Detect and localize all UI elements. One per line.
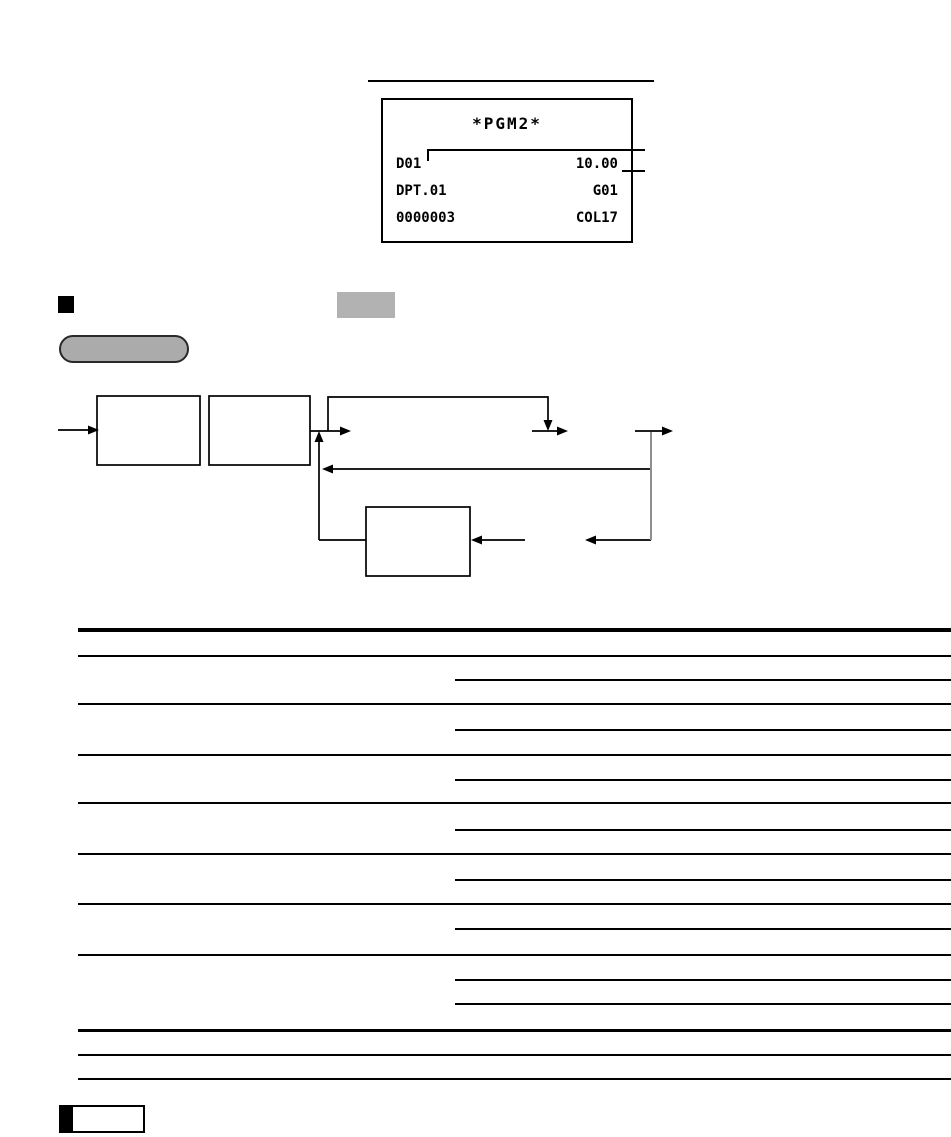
procedure-pill xyxy=(59,335,189,363)
arrowhead-bottom-2 xyxy=(471,536,482,545)
table-top-rule xyxy=(78,628,951,632)
table-sub-rule xyxy=(455,879,951,881)
receipt-row-1-left: D01 xyxy=(396,156,421,172)
flow-box-3 xyxy=(366,507,470,576)
table-sub-rule xyxy=(455,979,951,981)
note-box xyxy=(59,1105,145,1133)
table-rule xyxy=(78,903,951,905)
receipt-row-1: D01 10.00 xyxy=(383,156,631,172)
table-sub-rule xyxy=(455,928,951,930)
table-rule xyxy=(78,1054,951,1056)
arrowhead-entry xyxy=(88,426,99,435)
receipt-row-1-right: 10.00 xyxy=(576,156,618,172)
table-sub-rule xyxy=(455,1003,951,1005)
section-marker-icon xyxy=(58,296,74,313)
receipt-row-2: DPT.01 G01 xyxy=(383,183,631,199)
arrowhead-loop-up xyxy=(315,431,324,442)
table-sub-rule xyxy=(455,679,951,681)
receipt-row-2-left: DPT.01 xyxy=(396,183,447,199)
receipt-row-3-left: 0000003 xyxy=(396,210,455,226)
receipt-print-sample: *PGM2* D01 10.00 DPT.01 G01 0000003 COL1… xyxy=(381,98,633,243)
top-divider-rule xyxy=(368,80,654,82)
flow-box-1 xyxy=(97,396,200,465)
callout-line-price xyxy=(622,170,645,172)
arrowhead-seg-2 xyxy=(557,427,568,436)
flow-box-2 xyxy=(209,396,310,465)
note-tab-bar-icon xyxy=(61,1107,73,1131)
table-rule xyxy=(78,853,951,855)
arrowhead-seg-3 xyxy=(662,427,673,436)
table-rule xyxy=(78,954,951,956)
table-rule xyxy=(78,703,951,705)
table-sub-rule xyxy=(455,779,951,781)
flow-bypass-path xyxy=(328,397,548,431)
receipt-row-2-right: G01 xyxy=(593,183,618,199)
table-rule xyxy=(78,754,951,756)
manual-page: *PGM2* D01 10.00 DPT.01 G01 0000003 COL1… xyxy=(0,0,951,1137)
arrowhead-bypass-down xyxy=(544,420,553,431)
receipt-row-3-right: COL17 xyxy=(576,210,618,226)
table-sub-rule xyxy=(455,829,951,831)
table-rule xyxy=(78,655,951,657)
table-rule xyxy=(78,802,951,804)
arrowhead-seg-1 xyxy=(340,427,351,436)
callout-line-item-code-horizontal xyxy=(427,149,645,151)
receipt-mode-header: *PGM2* xyxy=(383,114,631,133)
receipt-row-3: 0000003 COL17 xyxy=(383,210,631,226)
table-bottom-rule xyxy=(78,1078,951,1080)
table-sub-rule xyxy=(455,729,951,731)
arrowhead-return-left xyxy=(322,465,333,474)
arrowhead-bottom-1 xyxy=(585,536,596,545)
table-rule xyxy=(78,1029,951,1032)
key-highlight-box xyxy=(337,292,395,318)
